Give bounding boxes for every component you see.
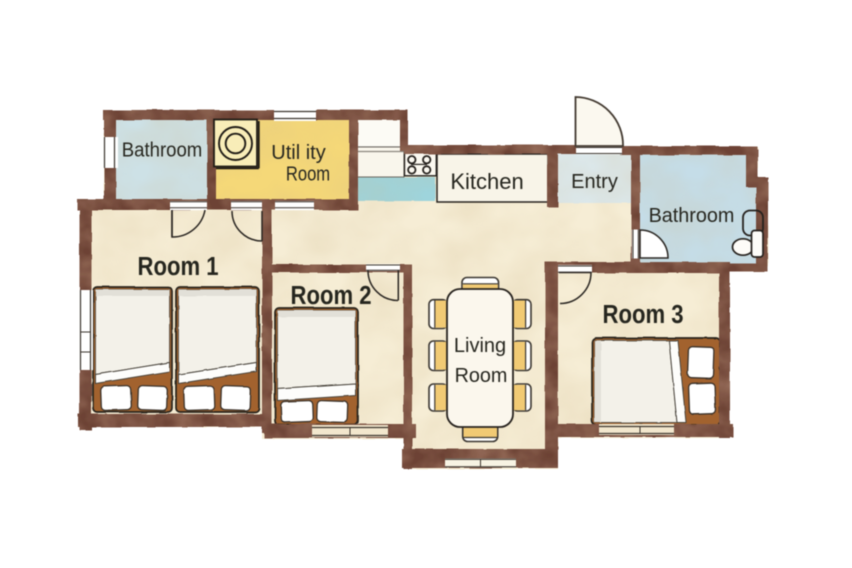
svg-text:Living: Living [454, 335, 506, 357]
svg-text:Room 3: Room 3 [603, 300, 684, 329]
svg-text:Bathroom: Bathroom [649, 205, 735, 227]
svg-text:Room 1: Room 1 [138, 252, 219, 281]
svg-text:Room 2: Room 2 [291, 281, 372, 310]
svg-text:Kitchen: Kitchen [450, 169, 523, 194]
svg-text:Bathroom: Bathroom [122, 140, 203, 162]
svg-text:Room: Room [455, 365, 508, 387]
svg-text:Util ity: Util ity [271, 142, 325, 164]
svg-text:Room: Room [286, 162, 330, 185]
svg-text:Entry: Entry [571, 171, 618, 193]
